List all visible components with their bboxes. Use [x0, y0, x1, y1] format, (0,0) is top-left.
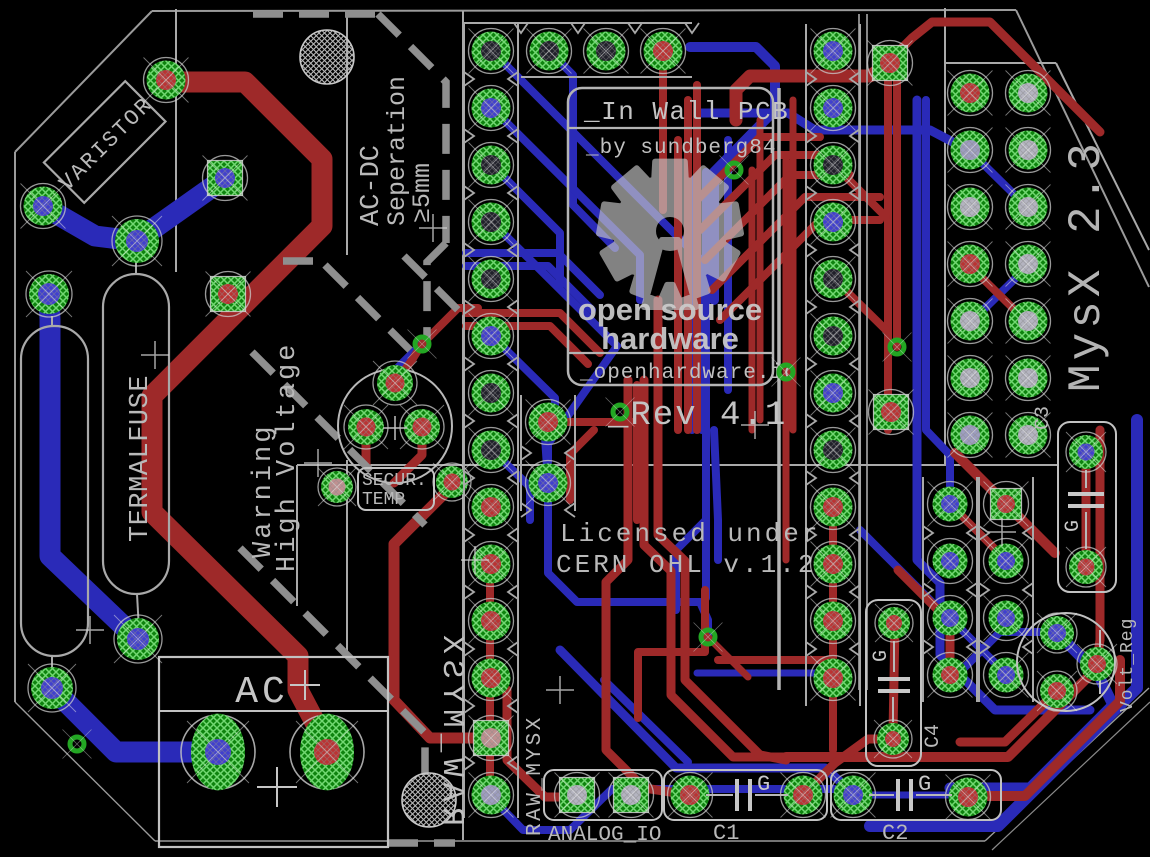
svg-text:G: G	[918, 772, 931, 797]
svg-text:_In Wall PCB: _In Wall PCB	[583, 97, 789, 127]
svg-text:SECUR.: SECUR.	[362, 471, 427, 491]
svg-text:RAW_MYSX: RAW_MYSX	[524, 715, 547, 836]
svg-text:C4: C4	[922, 724, 945, 748]
svg-text:Volt_Reg: Volt_Reg	[1118, 618, 1138, 712]
svg-text:≥5mm: ≥5mm	[408, 163, 437, 223]
svg-text:AC: AC	[235, 671, 289, 714]
svg-text:_Rev 4.1: _Rev 4.1	[607, 397, 787, 435]
svg-text:hardware: hardware	[601, 321, 739, 356]
svg-text:_openhardware.io: _openhardware.io	[579, 362, 798, 385]
svg-text:RAW_MYSX: RAW_MYSX	[434, 629, 469, 826]
svg-text:MysX 2.3: MysX 2.3	[1061, 139, 1113, 392]
svg-text:C3: C3	[1032, 406, 1055, 430]
svg-text:G: G	[1062, 520, 1085, 532]
svg-text:G: G	[757, 772, 770, 797]
svg-text:G: G	[870, 650, 893, 662]
svg-text:TEMP: TEMP	[362, 490, 405, 510]
svg-text:Licensed under: Licensed under	[560, 519, 820, 549]
svg-text:C1: C1	[713, 821, 739, 846]
svg-text:High Voltage: High Voltage	[273, 342, 303, 572]
svg-text:TERMALFUSE: TERMALFUSE	[126, 375, 156, 542]
svg-text:CERN OHL v.1.2: CERN OHL v.1.2	[556, 550, 816, 580]
svg-text:ANALOG_IO: ANALOG_IO	[548, 824, 661, 847]
svg-text:C2: C2	[882, 821, 908, 846]
